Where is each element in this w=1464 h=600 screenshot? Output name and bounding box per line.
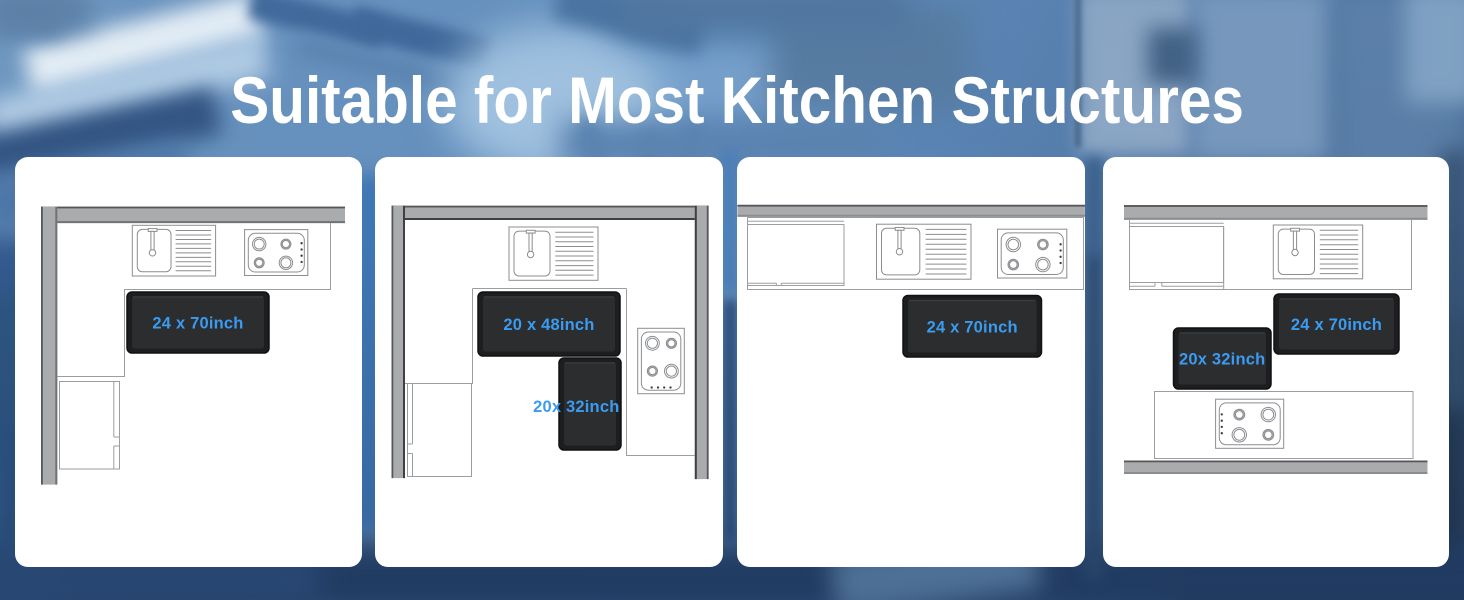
svg-text:20x 32inch: 20x 32inch [533, 398, 619, 416]
svg-text:20x 32inch: 20x 32inch [1179, 351, 1265, 369]
svg-text:24 x 70inch: 24 x 70inch [927, 318, 1018, 336]
svg-text:24 x 70inch: 24 x 70inch [152, 315, 243, 333]
svg-text:20 x 48inch: 20 x 48inch [503, 316, 594, 334]
svg-text:24 x 70inch: 24 x 70inch [1291, 316, 1382, 334]
